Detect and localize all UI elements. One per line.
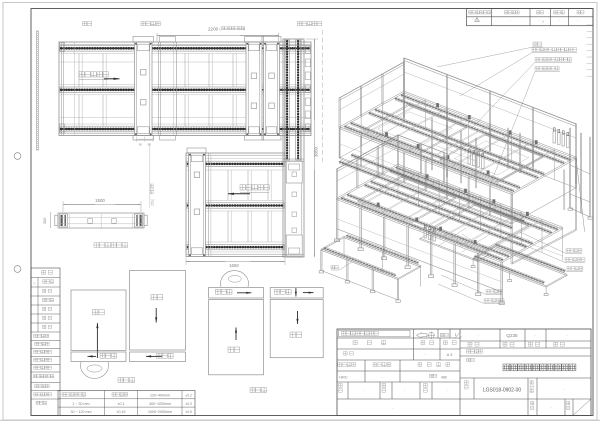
svg-text:Q235: Q235: [506, 333, 518, 338]
svg-text:400~1000mm: 400~1000mm: [149, 402, 171, 406]
svg-text:·: ·: [404, 388, 405, 393]
svg-text:·: ·: [577, 18, 578, 23]
svg-text:·: ·: [566, 333, 567, 338]
svg-text:±0.1: ±0.1: [118, 402, 125, 406]
svg-text:±0.3: ±0.3: [185, 402, 192, 406]
svg-text:3850: 3850: [314, 146, 319, 157]
svg-text:LGS018-0902-00: LGS018-0902-00: [483, 387, 522, 393]
svg-text:·: ·: [534, 333, 535, 338]
svg-text:120~400mm: 120~400mm: [150, 393, 170, 397]
svg-text:HRC: HRC: [339, 375, 347, 379]
svg-text:·: ·: [362, 388, 363, 393]
svg-text:·: ·: [509, 18, 510, 23]
svg-text:1650: 1650: [229, 263, 239, 268]
svg-text:·: ·: [446, 388, 447, 393]
svg-text:300: 300: [43, 218, 47, 224]
svg-text:·: ·: [563, 387, 564, 392]
svg-text:·: ·: [585, 410, 586, 414]
svg-text:1500: 1500: [95, 198, 105, 203]
svg-text:2200: 2200: [208, 27, 219, 32]
svg-text:·: ·: [577, 402, 578, 406]
svg-text:·: ·: [392, 406, 394, 411]
svg-text:1000~2000mm: 1000~2000mm: [148, 410, 172, 414]
svg-text:80: 80: [148, 142, 152, 146]
svg-text:80: 80: [139, 142, 143, 146]
svg-text:1 ~ 30 mm: 1 ~ 30 mm: [72, 402, 89, 406]
svg-text:·: ·: [558, 18, 559, 23]
svg-text:2: 2: [459, 336, 461, 340]
svg-text:1: 1: [476, 18, 478, 22]
svg-text:480: 480: [441, 376, 447, 380]
svg-text:±0.5: ±0.5: [185, 410, 192, 414]
svg-text:·: ·: [550, 405, 551, 410]
svg-text:±0.2: ±0.2: [185, 393, 192, 397]
svg-text:150(: 150(: [151, 198, 155, 206]
svg-text:·: ·: [477, 333, 478, 338]
svg-text:·: ·: [424, 352, 425, 357]
svg-text:·: ·: [538, 18, 539, 23]
svg-text:A 3: A 3: [447, 352, 454, 357]
svg-text:·: ·: [381, 374, 382, 379]
svg-text:): ): [244, 27, 245, 31]
svg-text:±0.15: ±0.15: [117, 410, 126, 414]
svg-text:30 ~ 120 mm: 30 ~ 120 mm: [70, 410, 91, 414]
